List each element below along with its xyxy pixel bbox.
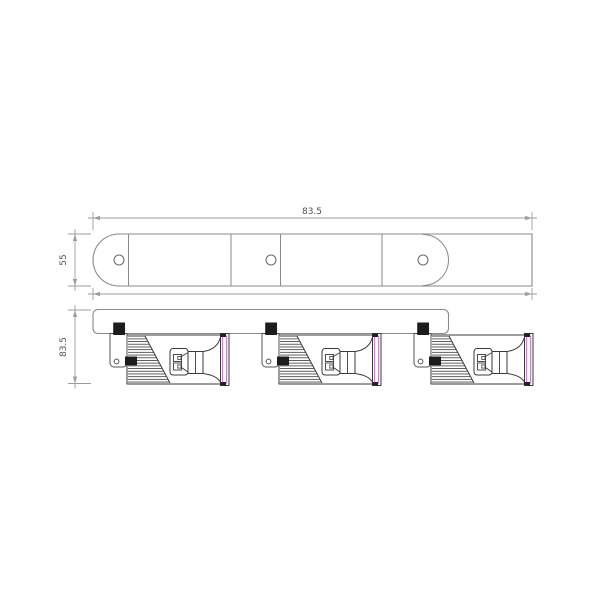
arrowhead-right — [525, 292, 532, 296]
arrowhead-left — [93, 216, 100, 220]
arrowhead-up — [73, 234, 77, 241]
arrowhead-left — [93, 292, 100, 296]
dimension-front-total-width — [88, 288, 537, 300]
mounting-hole-3 — [418, 255, 428, 265]
mounting-hole-1 — [114, 255, 124, 265]
dimension-front-view-height: 83.5 — [59, 305, 91, 389]
arrowhead-down — [73, 279, 77, 286]
drawing-page: 83.5 55 83.5 — [0, 0, 600, 600]
top-view — [93, 234, 532, 286]
dimension-label-top-length: 83.5 — [302, 207, 322, 217]
arrowhead-down — [73, 377, 77, 384]
dimension-label-front-view-height: 83.5 — [59, 337, 69, 357]
arrowhead-right — [525, 216, 532, 220]
dimension-label-top-view-height: 55 — [59, 254, 69, 265]
technical-drawing-canvas: 83.5 55 83.5 — [0, 0, 600, 600]
dimension-top-length: 83.5 — [88, 207, 537, 230]
front-view — [93, 310, 533, 386]
arrowhead-up — [73, 310, 77, 317]
mounting-hole-2 — [266, 255, 276, 265]
dimension-top-view-height: 55 — [59, 229, 91, 291]
bar-outline-top-view — [93, 234, 532, 286]
